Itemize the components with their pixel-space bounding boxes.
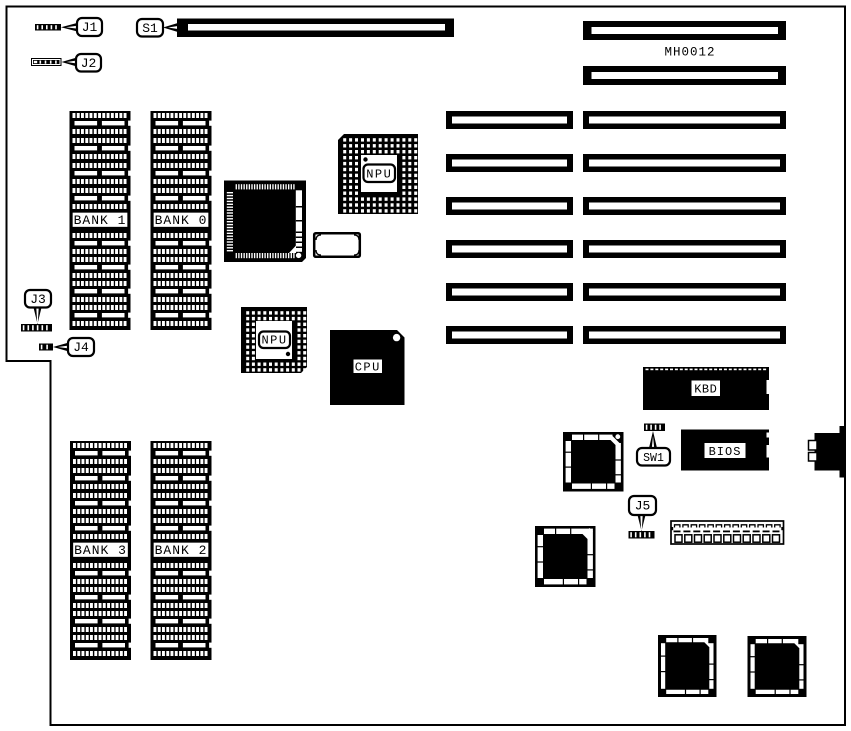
svg-text:BANK 3: BANK 3 (74, 543, 127, 558)
svg-text:J5: J5 (635, 499, 651, 514)
svg-text:J1: J1 (82, 20, 98, 35)
svg-text:J3: J3 (30, 292, 46, 307)
svg-text:CPU: CPU (355, 361, 381, 375)
svg-text:KBD: KBD (694, 383, 717, 397)
svg-text:NPU: NPU (261, 334, 287, 348)
svg-text:MH0012: MH0012 (664, 46, 715, 60)
svg-text:J4: J4 (73, 340, 89, 355)
svg-text:J2: J2 (81, 56, 97, 71)
svg-text:SW1: SW1 (643, 452, 664, 465)
svg-text:BANK 0: BANK 0 (155, 213, 208, 228)
svg-text:BIOS: BIOS (709, 445, 742, 459)
svg-text:S1: S1 (142, 21, 158, 36)
svg-text:BANK 2: BANK 2 (155, 543, 208, 558)
svg-text:NPU: NPU (366, 168, 392, 182)
svg-text:BANK 1: BANK 1 (74, 213, 127, 228)
